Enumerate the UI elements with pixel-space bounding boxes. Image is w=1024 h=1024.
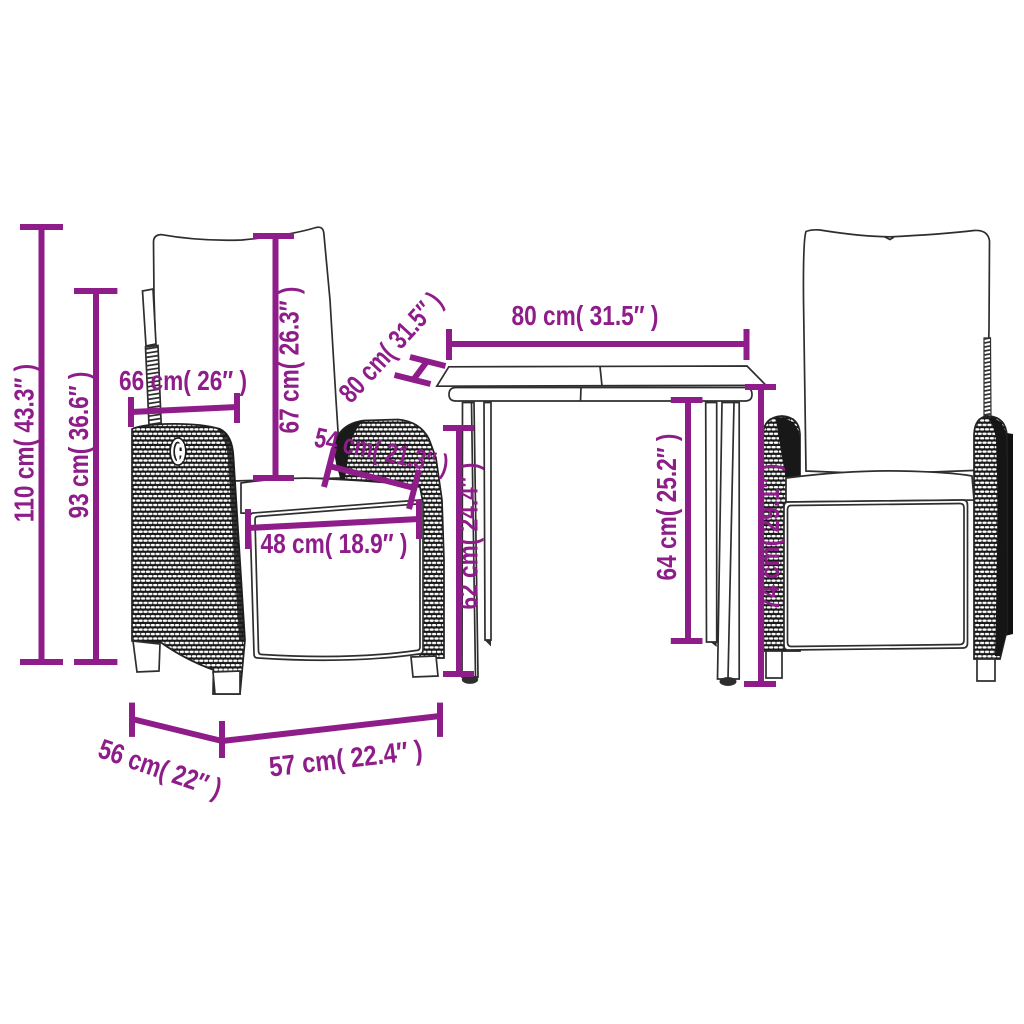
svg-text:74 cm( 29.1″ ): 74 cm( 29.1″ ) (755, 464, 786, 611)
svg-text:93 cm( 36.6″ ): 93 cm( 36.6″ ) (64, 372, 95, 519)
svg-text:48 cm( 18.9″ ): 48 cm( 18.9″ ) (261, 529, 408, 560)
svg-text:110 cm( 43.3″ ): 110 cm( 43.3″ ) (9, 364, 40, 522)
svg-text:67 cm( 26.3″ ): 67 cm( 26.3″ ) (274, 287, 305, 434)
svg-text:62 cm( 24.4″ ): 62 cm( 24.4″ ) (453, 463, 484, 610)
svg-text:66 cm( 26″ ): 66 cm( 26″ ) (119, 366, 247, 397)
svg-text:64 cm( 25.2″ ): 64 cm( 25.2″ ) (652, 434, 683, 581)
svg-text:80 cm( 31.5″ ): 80 cm( 31.5″ ) (512, 301, 659, 332)
